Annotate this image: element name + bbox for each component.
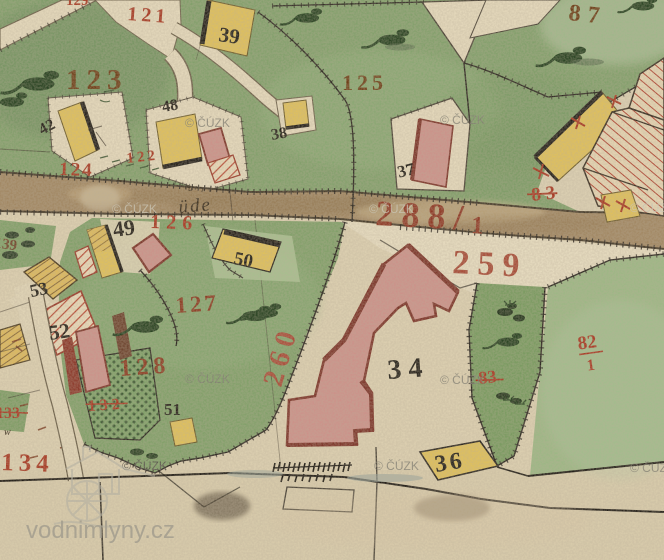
svg-text:vodnimlyny.cz: vodnimlyny.cz	[26, 517, 175, 544]
